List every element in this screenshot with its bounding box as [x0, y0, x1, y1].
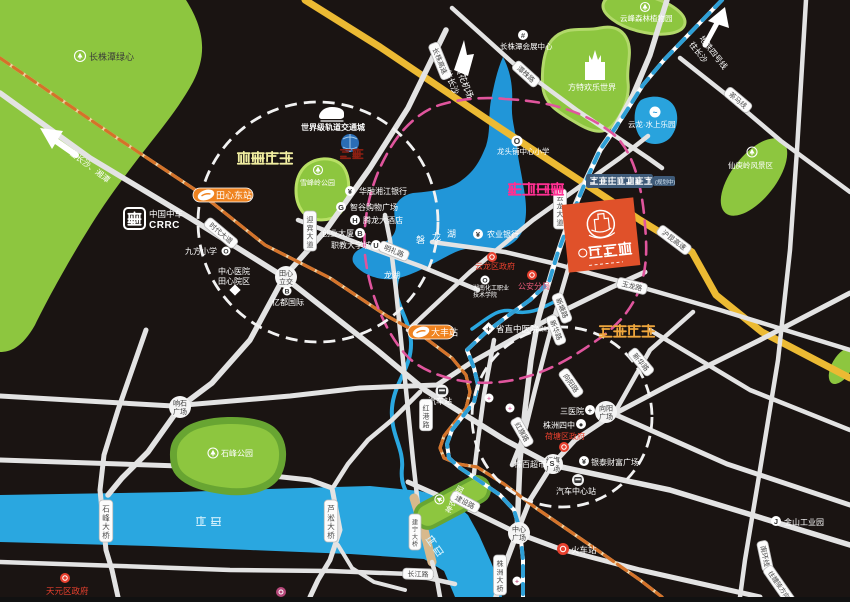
svg-text:汽车中心站: 汽车中心站	[556, 486, 596, 496]
svg-text:立交: 立交	[279, 277, 293, 286]
svg-text:(规划中): (规划中)	[536, 325, 556, 333]
svg-text:+: +	[508, 405, 512, 412]
svg-text:智谷购物广场: 智谷购物广场	[350, 202, 398, 212]
svg-text:九方小学: 九方小学	[185, 246, 217, 256]
svg-text:S: S	[549, 459, 554, 468]
svg-text:宁: 宁	[412, 526, 418, 534]
svg-text:株百超市: 株百超市	[514, 459, 546, 469]
svg-text:道: 道	[557, 218, 564, 227]
svg-text:桥: 桥	[327, 530, 335, 540]
svg-text:桥: 桥	[412, 540, 418, 548]
svg-text:峰: 峰	[102, 512, 110, 522]
svg-text:O: O	[223, 248, 228, 255]
svg-text:技术学院: 技术学院	[473, 291, 497, 299]
svg-text:公安分局: 公安分局	[518, 281, 550, 291]
svg-text:云峰森林植物园: 云峰森林植物园	[620, 13, 673, 23]
svg-text:道: 道	[307, 240, 314, 249]
svg-text:中心: 中心	[512, 525, 526, 534]
svg-text:H: H	[352, 216, 357, 225]
svg-text:天元区政府: 天元区政府	[46, 586, 89, 596]
svg-text:响石: 响石	[173, 399, 187, 408]
svg-text:向阳: 向阳	[599, 404, 613, 413]
svg-text:磐: 磐	[416, 234, 425, 245]
svg-text:+: +	[588, 406, 593, 415]
svg-text:芦: 芦	[327, 504, 335, 514]
svg-text:CRRC: CRRC	[149, 220, 180, 231]
svg-text:淞: 淞	[327, 513, 335, 522]
svg-text:广场: 广场	[173, 407, 187, 416]
svg-text:O: O	[514, 137, 521, 146]
svg-text:建: 建	[412, 518, 418, 526]
svg-text:方特欢乐世界: 方特欢乐世界	[568, 82, 616, 92]
svg-text:中国中车: 中国中车	[149, 209, 183, 219]
svg-text:大: 大	[412, 533, 418, 541]
svg-text:龙头铺中心小学: 龙头铺中心小学	[497, 146, 550, 156]
svg-text:(规划中): (规划中)	[655, 178, 675, 186]
svg-text:中心医院: 中心医院	[218, 266, 250, 276]
svg-text:石: 石	[102, 505, 110, 514]
svg-text:农业银行: 农业银行	[487, 229, 519, 239]
svg-text:田心院区: 田心院区	[218, 276, 250, 286]
svg-text:广场: 广场	[599, 412, 613, 421]
svg-text:荷塘区政府: 荷塘区政府	[545, 431, 585, 441]
svg-text:大: 大	[327, 521, 335, 531]
svg-text:O: O	[482, 277, 487, 284]
svg-text:长株潭会展中心: 长株潭会展中心	[500, 41, 553, 51]
svg-text:腾龙大酒店: 腾龙大酒店	[363, 215, 403, 225]
svg-text:洲: 洲	[497, 568, 504, 576]
svg-text:龙湖: 龙湖	[384, 270, 400, 280]
svg-text:华融湘江银行: 华融湘江银行	[359, 186, 407, 196]
svg-text:+: +	[487, 395, 491, 402]
svg-text:大: 大	[497, 576, 504, 585]
svg-text:J: J	[774, 517, 778, 526]
svg-text:亿都国际: 亿都国际	[272, 297, 304, 307]
svg-text:田心东站: 田心东站	[216, 190, 252, 201]
svg-text:湖南化工职业: 湖南化工职业	[473, 284, 509, 292]
svg-text:桥: 桥	[102, 530, 110, 540]
svg-text:宾: 宾	[307, 223, 314, 232]
svg-text:湖: 湖	[447, 229, 456, 239]
svg-text:港: 港	[423, 412, 430, 421]
svg-text:B: B	[285, 288, 290, 295]
svg-text:+: +	[515, 578, 519, 585]
svg-text:仙庾岭风景区: 仙庾岭风景区	[728, 160, 773, 170]
svg-text:株: 株	[497, 559, 504, 568]
svg-text:金山工业园: 金山工业园	[784, 517, 824, 527]
svg-text:三医院: 三医院	[560, 406, 584, 416]
svg-text:龙: 龙	[432, 231, 441, 242]
svg-text:创业大厦: 创业大厦	[322, 228, 354, 238]
svg-text:广场: 广场	[512, 533, 526, 542]
svg-text:长株潭绿心: 长株潭绿心	[89, 51, 134, 62]
svg-text:田心: 田心	[279, 270, 293, 278]
svg-text:雪峰岭公园: 雪峰岭公园	[300, 178, 335, 187]
svg-text:大: 大	[307, 232, 314, 241]
svg-text:U: U	[373, 241, 378, 250]
svg-text:大丰站: 大丰站	[431, 327, 458, 338]
svg-text:职教大学城: 职教大学城	[331, 240, 371, 250]
svg-text:汽车站: 汽车站	[428, 396, 452, 406]
svg-text:●: ●	[579, 420, 584, 429]
svg-text:云龙·水上乐园: 云龙·水上乐园	[628, 119, 676, 129]
svg-text:株洲四中: 株洲四中	[543, 420, 575, 430]
svg-text:G: G	[338, 203, 344, 212]
svg-text:世界级轨道交通城: 世界级轨道交通城	[301, 122, 365, 132]
svg-text:银泰财富广场: 银泰财富广场	[591, 457, 639, 467]
svg-text:~: ~	[653, 108, 658, 117]
svg-text:路: 路	[423, 420, 430, 429]
svg-text:火车站: 火车站	[571, 545, 597, 555]
svg-text:桥: 桥	[497, 584, 504, 593]
svg-text:迎: 迎	[307, 215, 314, 224]
svg-text:云龙区政府: 云龙区政府	[475, 261, 515, 271]
svg-text:+: +	[486, 325, 491, 334]
svg-text:B: B	[357, 229, 363, 238]
svg-text:大: 大	[102, 521, 110, 531]
svg-text:石峰公园: 石峰公园	[221, 448, 253, 458]
svg-text:省直中医院: 省直中医院	[496, 324, 539, 334]
